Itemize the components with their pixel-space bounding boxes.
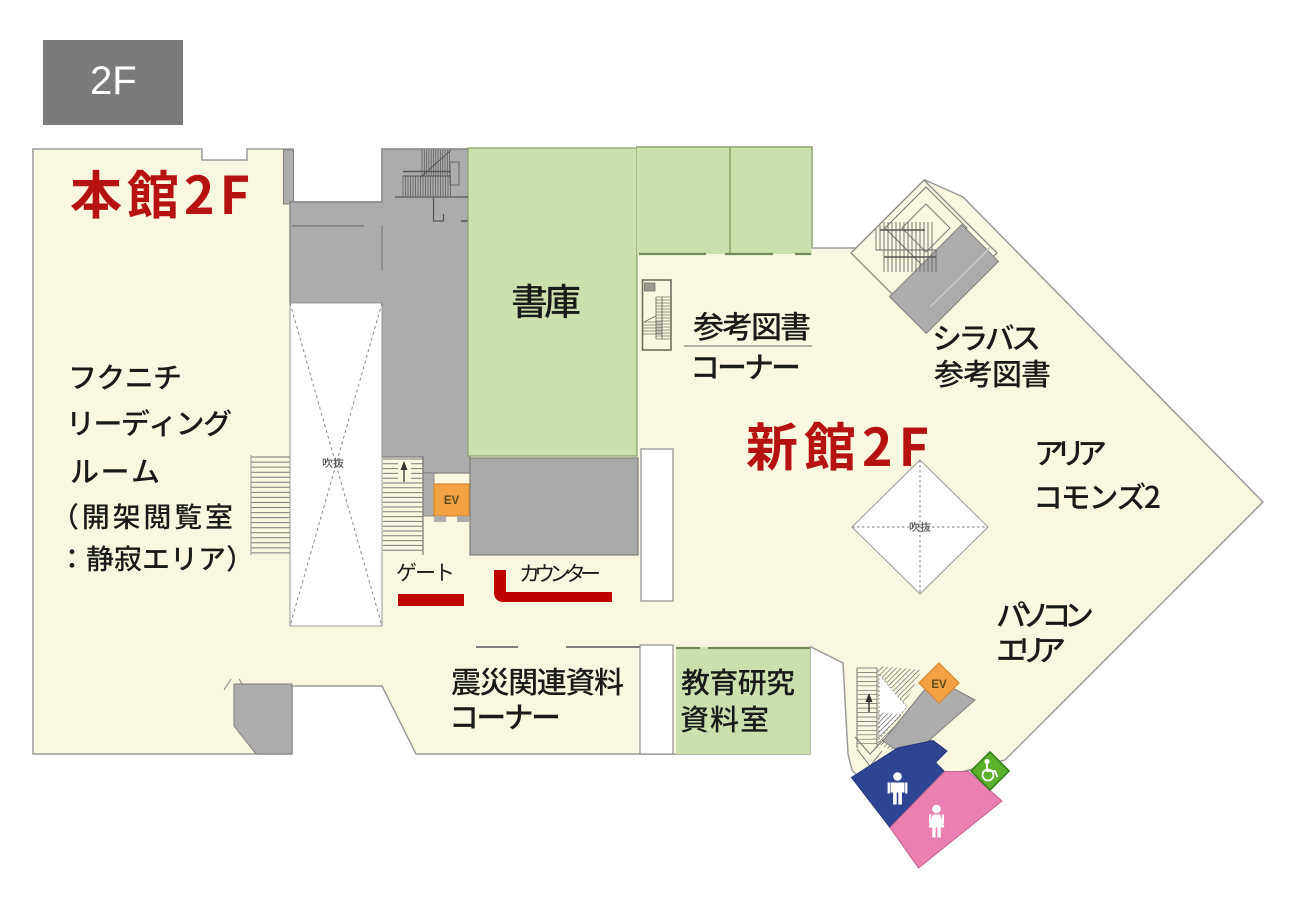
svg-text:2F: 2F xyxy=(90,59,137,103)
svg-text:EV: EV xyxy=(931,679,947,691)
svg-text:EV: EV xyxy=(444,495,460,507)
